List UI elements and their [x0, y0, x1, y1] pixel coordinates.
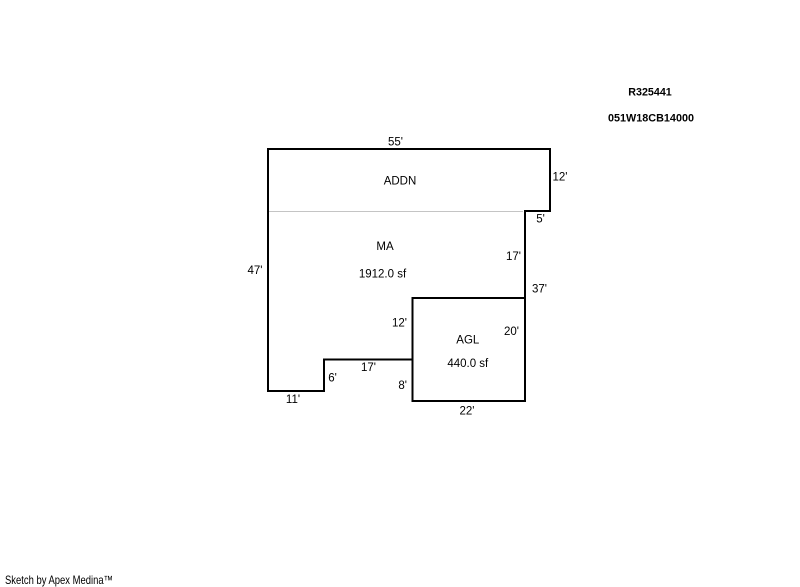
svg-text:051W18CB14000: 051W18CB14000 — [608, 113, 694, 125]
svg-text:47': 47' — [248, 265, 263, 277]
svg-text:55': 55' — [388, 137, 403, 149]
svg-text:37': 37' — [532, 284, 547, 296]
svg-text:11': 11' — [286, 394, 300, 406]
svg-text:17': 17' — [506, 251, 521, 263]
svg-text:6': 6' — [328, 373, 337, 385]
svg-text:20': 20' — [504, 326, 519, 338]
svg-text:12': 12' — [392, 318, 407, 330]
svg-text:R325441: R325441 — [628, 87, 672, 99]
svg-text:Sketch by Apex Medina™: Sketch by Apex Medina™ — [5, 573, 113, 587]
svg-text:1912.0 sf: 1912.0 sf — [359, 269, 407, 281]
svg-text:22': 22' — [460, 406, 475, 418]
svg-text:ADDN: ADDN — [384, 176, 417, 188]
svg-text:440.0 sf: 440.0 sf — [447, 358, 489, 370]
svg-text:8': 8' — [398, 380, 407, 392]
svg-text:17': 17' — [361, 362, 376, 374]
svg-text:AGL: AGL — [456, 335, 480, 347]
svg-text:12': 12' — [553, 172, 568, 184]
svg-text:5': 5' — [536, 214, 545, 226]
svg-text:MA: MA — [376, 241, 394, 253]
